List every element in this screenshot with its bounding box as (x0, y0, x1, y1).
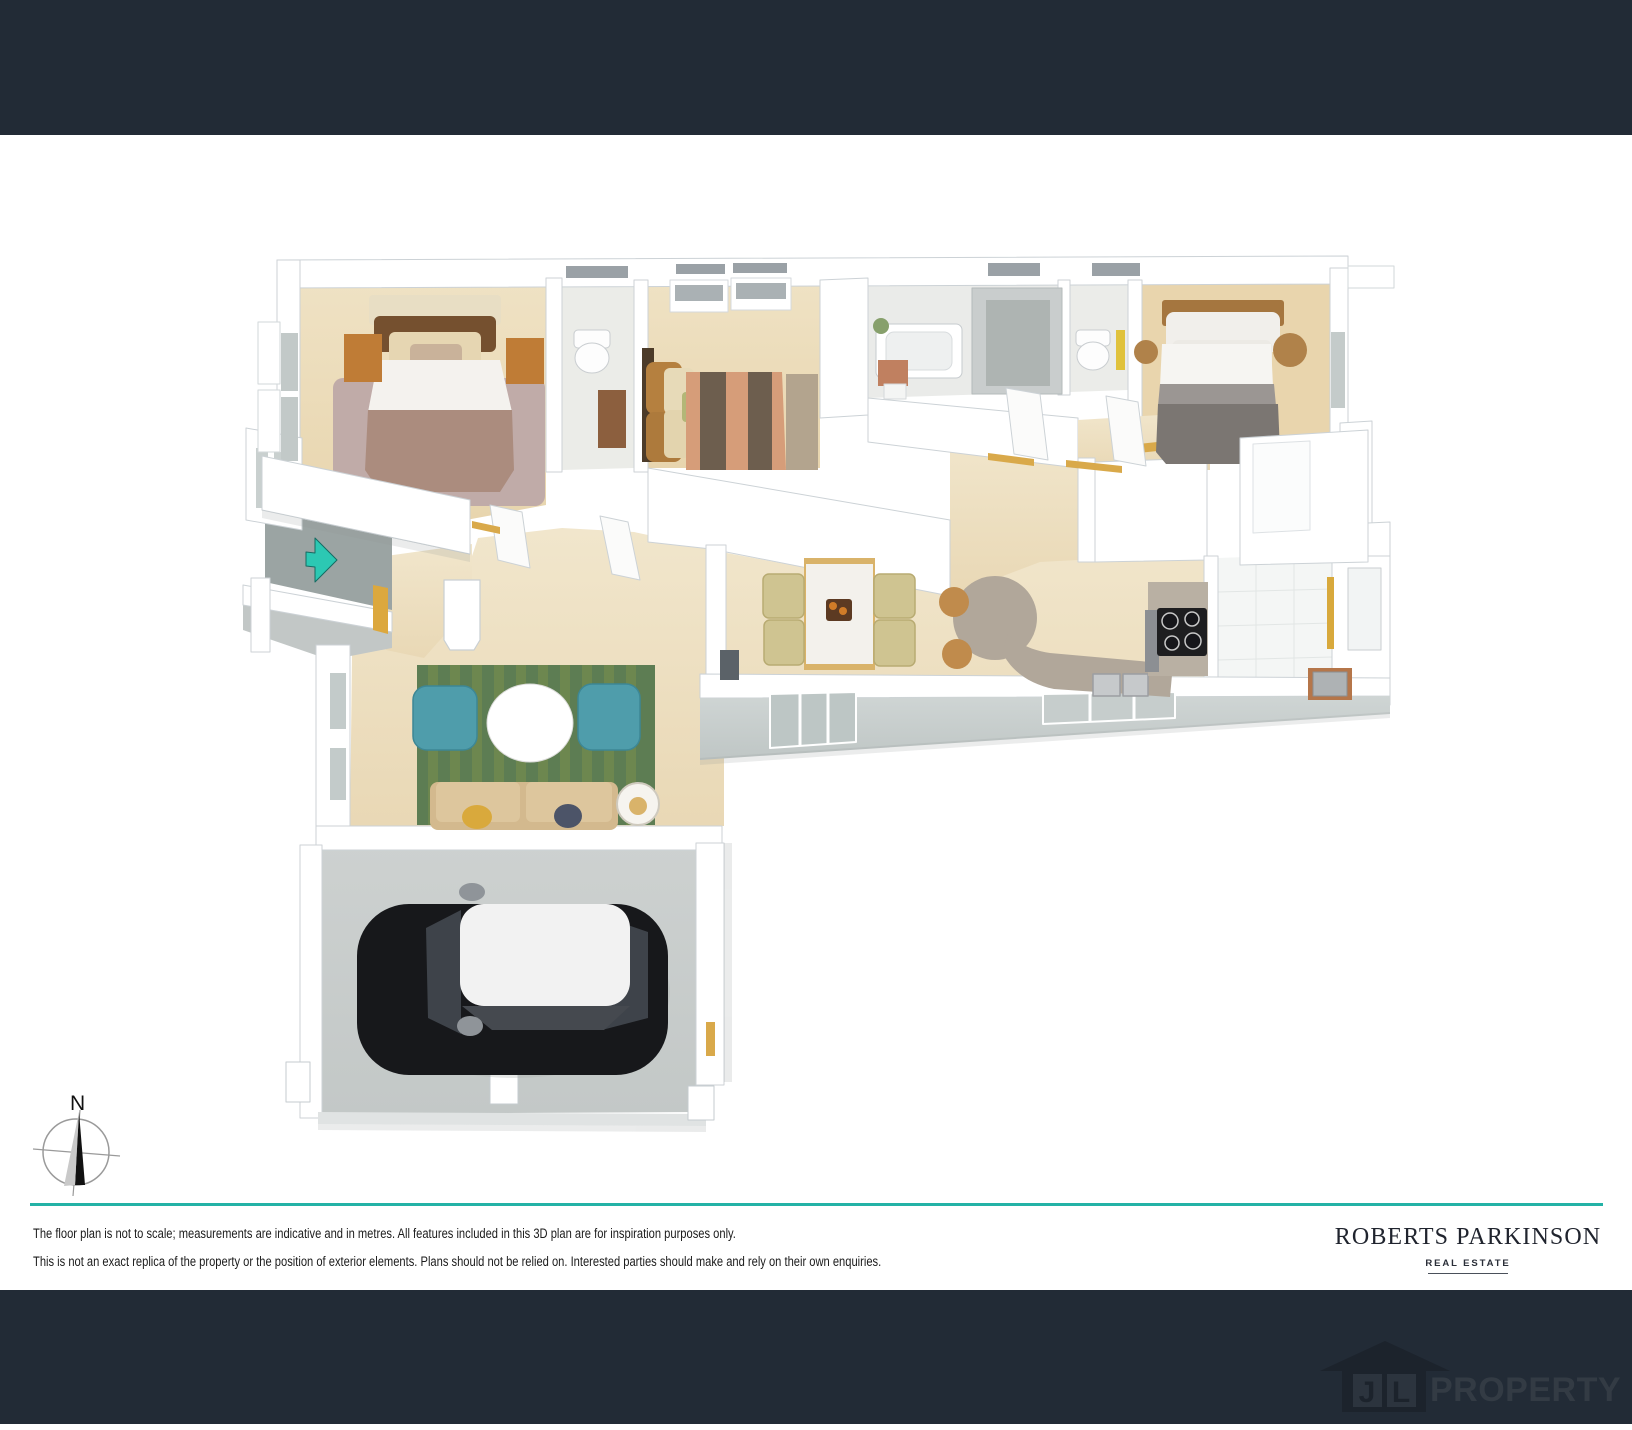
svg-text:PROPERTY: PROPERTY (1430, 1371, 1621, 1409)
svg-text:N: N (70, 1092, 85, 1115)
svg-text:L: L (1392, 1376, 1410, 1409)
svg-text:J: J (1359, 1376, 1376, 1409)
